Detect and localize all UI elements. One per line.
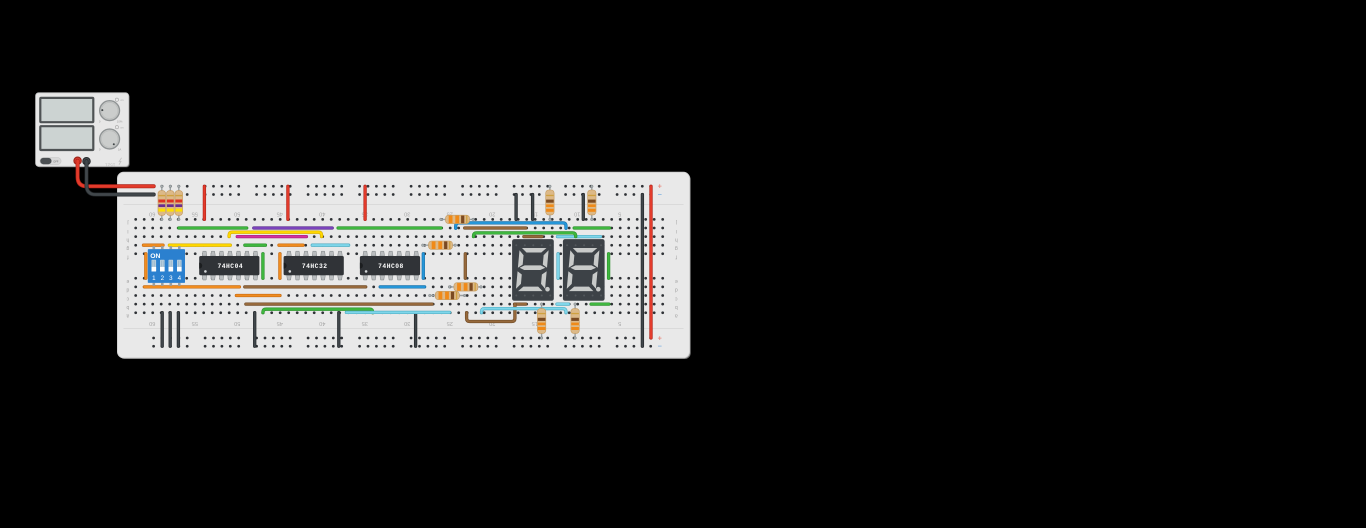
svg-text:60: 60 (149, 320, 155, 326)
svg-text:55: 55 (192, 211, 198, 217)
svg-text:2: 2 (161, 275, 165, 282)
svg-text:50: 50 (234, 320, 240, 326)
svg-text:ON: ON (150, 253, 160, 260)
svg-text:60: 60 (149, 211, 155, 217)
svg-text:3: 3 (169, 275, 173, 282)
svg-text:10: 10 (574, 211, 580, 217)
svg-text:e: e (126, 278, 129, 284)
svg-text:j: j (676, 219, 678, 225)
svg-text:d: d (126, 287, 129, 293)
svg-text:74HC04: 74HC04 (217, 263, 243, 270)
svg-text:a: a (126, 313, 129, 319)
svg-text:OFF: OFF (53, 159, 59, 163)
svg-text:g: g (675, 245, 678, 251)
svg-text:g: g (126, 245, 129, 251)
svg-text:b: b (675, 304, 678, 310)
svg-text:30: 30 (404, 320, 410, 326)
svg-text:1A: 1A (118, 147, 122, 151)
svg-text:45: 45 (277, 320, 283, 326)
svg-text:d: d (675, 287, 678, 293)
svg-text:30: 30 (404, 211, 410, 217)
svg-text:−: − (658, 190, 662, 199)
svg-text:5: 5 (618, 320, 621, 326)
svg-text:20: 20 (489, 211, 495, 217)
svg-text:4: 4 (178, 275, 182, 282)
svg-text:1521: 1521 (105, 162, 116, 167)
svg-text:40: 40 (319, 211, 325, 217)
svg-text:10%: 10% (117, 120, 123, 124)
svg-text:50: 50 (234, 211, 240, 217)
svg-text:a: a (675, 313, 678, 319)
svg-text:i: i (127, 228, 128, 234)
svg-text:74HC32: 74HC32 (302, 263, 328, 270)
svg-text:74HC08: 74HC08 (378, 263, 404, 270)
svg-text:e: e (675, 278, 678, 284)
svg-text:h: h (126, 236, 129, 242)
svg-text:35: 35 (362, 320, 368, 326)
svg-text:25: 25 (447, 320, 453, 326)
svg-text:40: 40 (319, 320, 325, 326)
svg-text:j: j (127, 219, 129, 225)
svg-text:i: i (676, 228, 677, 234)
svg-text:−: − (658, 342, 662, 351)
svg-text:45: 45 (277, 211, 283, 217)
svg-text:h: h (675, 236, 678, 242)
svg-text:1: 1 (152, 275, 156, 282)
svg-text:15: 15 (532, 320, 538, 326)
svg-text:55: 55 (192, 320, 198, 326)
svg-text:5: 5 (618, 211, 621, 217)
svg-text:b: b (126, 304, 129, 310)
